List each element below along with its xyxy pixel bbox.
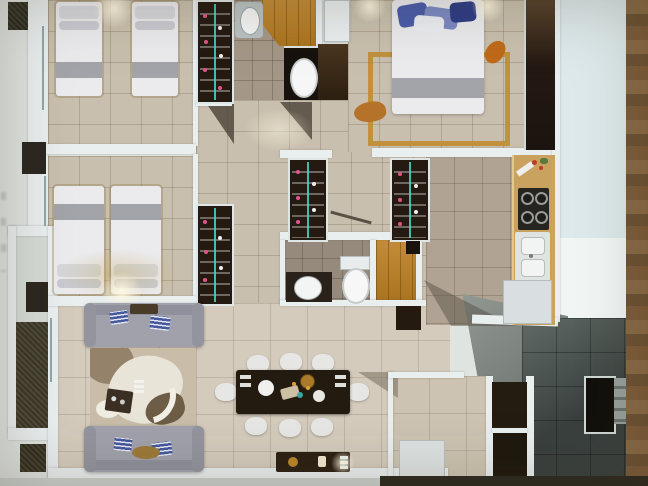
- plate-white: [258, 380, 274, 396]
- wall-balcony-bottom: [8, 428, 52, 440]
- throw-gold: [132, 446, 160, 459]
- window-line-2: [44, 176, 46, 230]
- paper-glare: [548, 238, 630, 324]
- bed-runner: [132, 62, 178, 78]
- wall-utility-col2: [526, 376, 534, 478]
- spine-marks: [1, 192, 6, 272]
- coffee-table: [105, 388, 134, 413]
- terrace-doorway: [584, 376, 616, 434]
- wall-bathroom2-left: [280, 240, 285, 302]
- bed-twin-2: [132, 2, 178, 96]
- walk-in-closet-b: [390, 158, 430, 242]
- wall-ac-box-1: [22, 142, 46, 174]
- living-rug: [90, 348, 196, 430]
- sofa-1: [84, 303, 204, 347]
- cabinet-dark: [318, 44, 348, 100]
- bed-runner: [111, 204, 161, 220]
- dining-chair: [311, 418, 333, 436]
- bed-runner: [56, 62, 102, 78]
- pillow: [135, 21, 175, 30]
- hall-light-wash: [244, 108, 314, 152]
- red-item: [539, 166, 543, 170]
- placemat: [240, 383, 251, 387]
- table-dot: [111, 396, 117, 402]
- sink-basin: [240, 7, 260, 35]
- wall-bathroom1-right: [316, 0, 322, 44]
- sofa-arm: [192, 426, 204, 472]
- magazines: [134, 380, 144, 394]
- placemat: [335, 375, 346, 379]
- sofa-2: [84, 426, 204, 472]
- closet-rail-light: [409, 162, 411, 238]
- floor-plan-photo: [0, 0, 648, 486]
- vanity-bathroom2: [286, 272, 332, 302]
- teal-bowl: [297, 392, 303, 398]
- utility-opening-lower: [493, 433, 527, 478]
- sofa-arm: [84, 426, 96, 472]
- ceiling-light-master-2: [470, 0, 506, 24]
- wardrobe-master: [524, 0, 555, 150]
- candle: [318, 456, 326, 467]
- master-door-panel: [324, 0, 350, 42]
- sofa-back: [87, 460, 201, 470]
- shoe-cabinet: [396, 306, 421, 330]
- dining-chair: [245, 417, 267, 435]
- toilet-bathroom2: [338, 256, 370, 302]
- dining-chair: [215, 383, 237, 401]
- gold-plate: [288, 457, 298, 467]
- candle-glow: [330, 450, 356, 476]
- closet-rail-light: [214, 208, 216, 302]
- table-edge-wood: [626, 0, 648, 486]
- placemat: [240, 375, 251, 379]
- bed-runner: [54, 204, 104, 220]
- plate-small: [313, 390, 325, 402]
- walk-in-closet-a: [288, 158, 328, 242]
- zigzag-pillow: [109, 310, 129, 325]
- vanity-basin: [294, 276, 322, 300]
- kitchen-items: [514, 158, 550, 186]
- dining-chair: [279, 419, 301, 437]
- closet-rail-light: [214, 4, 216, 100]
- wall-utility-top: [388, 372, 464, 378]
- wall-bedrooms-divider: [28, 144, 196, 154]
- toilet-bathroom1: [290, 58, 318, 98]
- candle-amber: [292, 382, 296, 386]
- sofa-arm: [84, 303, 96, 347]
- candle-amber: [306, 386, 310, 390]
- washer-box: [399, 440, 445, 478]
- faucet: [529, 254, 533, 258]
- wall-utility-left: [388, 372, 393, 478]
- ceiling-light-master-1: [352, 0, 388, 24]
- bed-runner: [392, 78, 484, 98]
- wall-ac-box-2: [26, 282, 48, 312]
- placemat: [335, 383, 346, 387]
- wall-balcony-left: [8, 226, 16, 432]
- stove: [518, 188, 549, 230]
- pillow: [135, 6, 175, 19]
- photo-bottom-edge-dark: [380, 476, 648, 486]
- corridor-dark-box: [406, 241, 420, 254]
- white-pillow: [413, 15, 444, 34]
- dining-chair: [347, 383, 369, 401]
- kitchen-sink: [515, 232, 550, 282]
- photo-bottom-edge-light: [0, 478, 380, 486]
- zigzag-pillow: [149, 315, 171, 331]
- red-item: [532, 160, 537, 165]
- sofa-arm: [192, 303, 204, 347]
- dining-table: [236, 370, 350, 414]
- sink-bathroom1: [235, 2, 263, 38]
- ceiling-light-bedroom1: [92, 0, 136, 30]
- window-line-1: [42, 26, 44, 110]
- planter-box-bottom: [20, 444, 46, 472]
- wall-bathroom2-divider: [370, 240, 376, 302]
- toilet-bowl: [342, 268, 370, 304]
- herb-item: [540, 158, 548, 164]
- wardrobe-bedroom2: [196, 204, 234, 306]
- dining-chair: [280, 353, 302, 371]
- window-line-3: [50, 318, 52, 382]
- closet-rail-light: [307, 162, 309, 238]
- fridge: [503, 280, 552, 324]
- throw-blanket: [130, 304, 158, 314]
- zigzag-pillow: [113, 437, 132, 452]
- table-dot: [120, 399, 126, 405]
- wardrobe-top: [196, 0, 234, 104]
- utility-opening-upper: [492, 382, 527, 428]
